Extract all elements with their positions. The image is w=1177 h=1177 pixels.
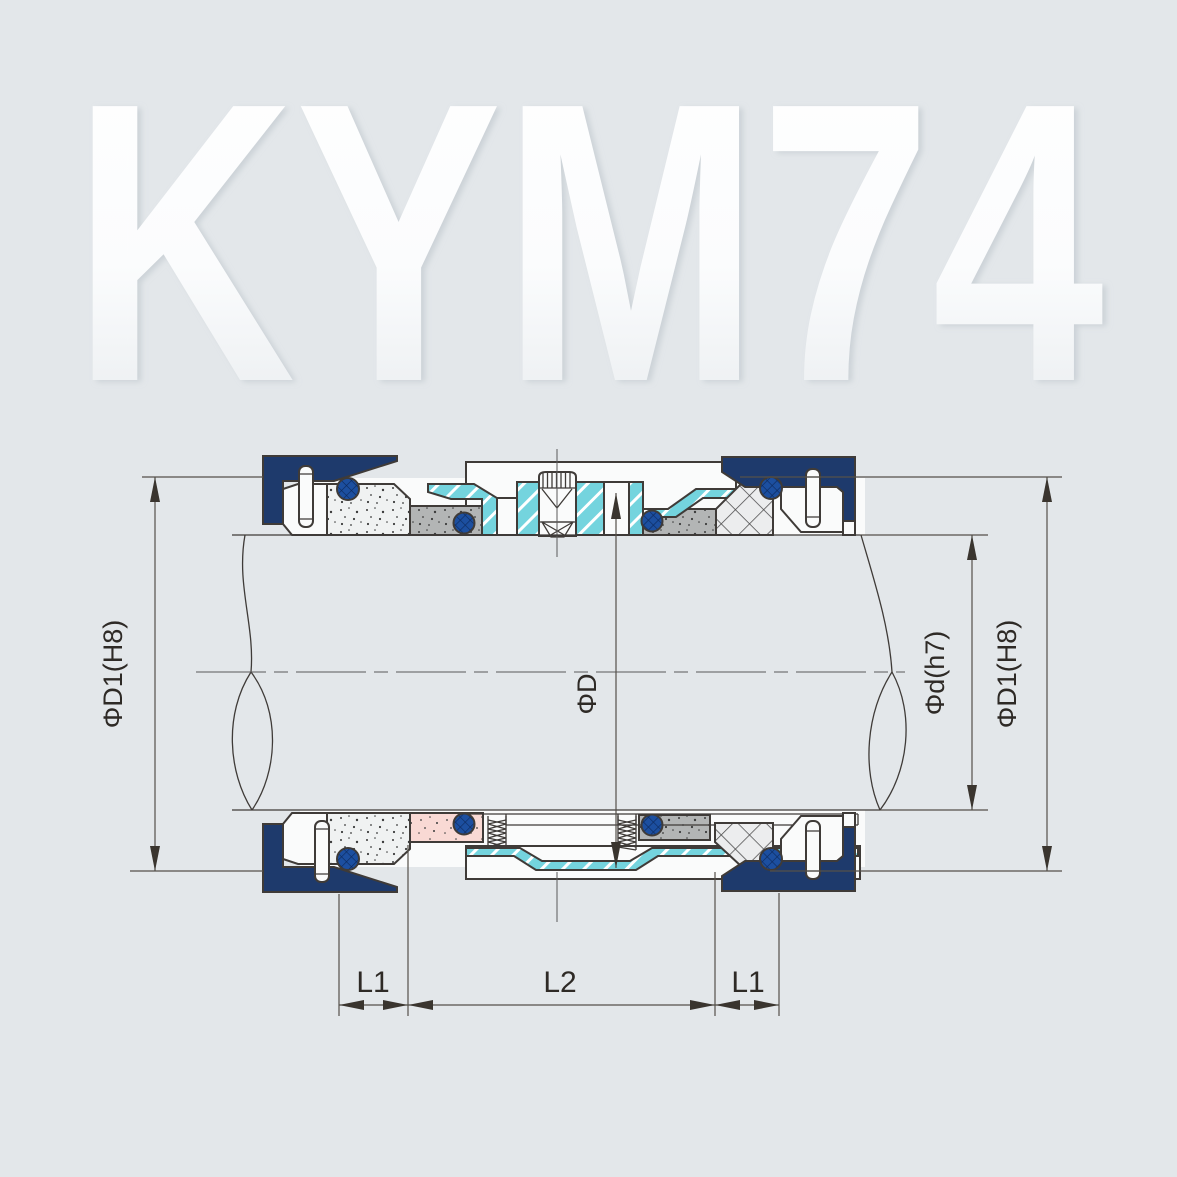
dim-L1-left-label: L1: [356, 966, 389, 999]
o-ring-top-right-inner: [642, 511, 663, 532]
gland-gasket-bottom-right: [843, 813, 855, 827]
o-ring-bottom-right-inner: [642, 815, 663, 836]
o-ring-top-right-outer: [760, 477, 782, 499]
dim-d-label: Φd(h7): [920, 631, 950, 716]
gland-bolt-top-right: [806, 469, 820, 527]
gland-bolt-bottom-left: [315, 821, 329, 882]
gland-bolt-top-left: [299, 466, 313, 527]
dim-L2-label: L2: [543, 966, 576, 999]
seal-assembly-bottom: [263, 810, 865, 892]
seal-assembly-top: [263, 449, 865, 557]
gland-gasket-top-right: [843, 521, 855, 535]
dim-D1-right-label: ΦD1(H8): [992, 620, 1022, 729]
drive-collar-top-right: [629, 482, 643, 535]
retainer-gap-top: [497, 498, 517, 535]
gland-bolt-bottom-right: [806, 821, 820, 879]
o-ring-bottom-left-inner: [454, 814, 475, 835]
seal-drawing-svg: KYM74: [0, 0, 1177, 1177]
o-ring-top-left-outer: [337, 478, 359, 500]
watermark-model-text: KYM74: [72, 21, 1106, 465]
o-ring-bottom-left-outer: [337, 848, 359, 870]
dim-D1-left-label: ΦD1(H8): [98, 620, 128, 729]
o-ring-top-left-inner: [454, 513, 475, 534]
o-ring-bottom-right-outer: [760, 848, 782, 870]
dim-D-label: ΦD: [572, 673, 602, 714]
dim-D1-left: ΦD1(H8): [98, 477, 263, 871]
dim-d: Φd(h7): [920, 535, 977, 810]
dim-L1-right-label: L1: [731, 966, 764, 999]
technical-drawing-page: KYM74: [0, 0, 1177, 1177]
